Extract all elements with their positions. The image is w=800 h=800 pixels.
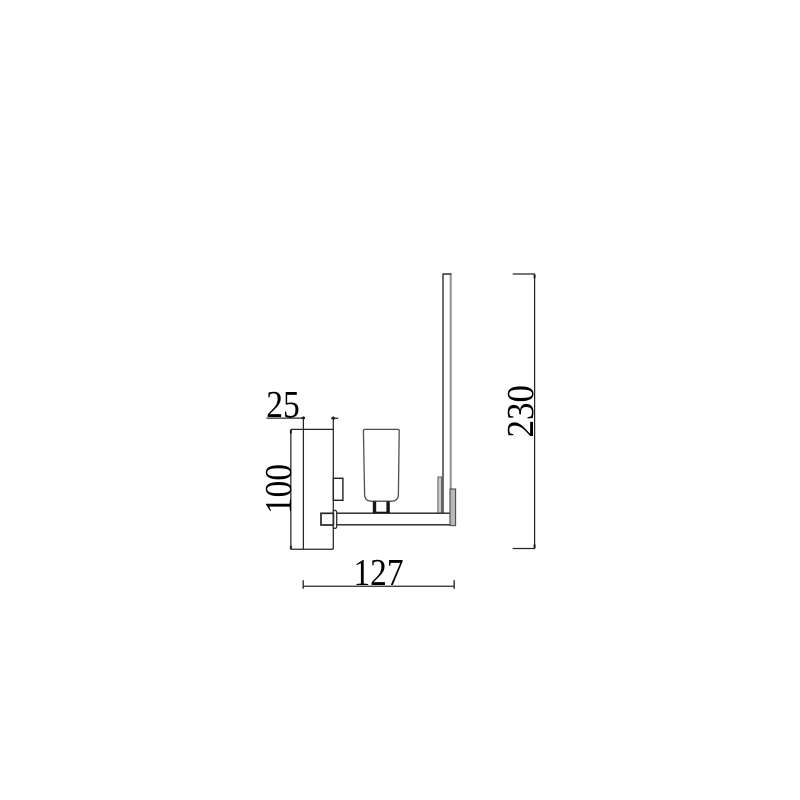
svg-text:127: 127: [354, 552, 404, 594]
svg-text:230: 230: [500, 385, 542, 438]
svg-text:25: 25: [266, 384, 300, 426]
svg-text:100: 100: [258, 464, 300, 514]
